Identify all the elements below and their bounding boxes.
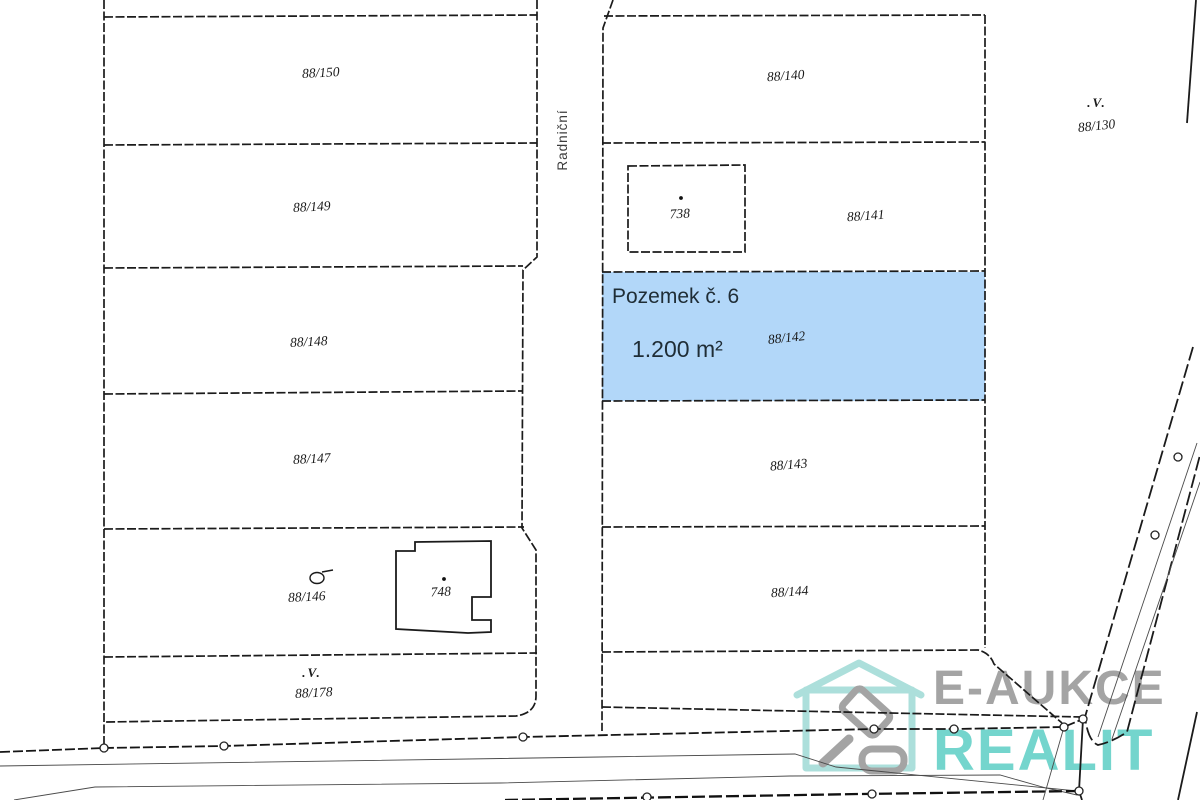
parcel-label-88-148: 88/148: [290, 333, 328, 350]
gavel-base: [862, 749, 904, 771]
highlight-parcel-area: 1.200 m²: [632, 336, 723, 362]
parcel-label-88-141: 88/141: [846, 207, 884, 225]
survey-point: [643, 793, 651, 800]
left-block-north-boundary: [104, 15, 537, 17]
cadastral-map: E-AUKCE REALIT: [0, 0, 1200, 800]
building-738-point: [679, 196, 683, 200]
parcel-label-88-146: 88/146: [288, 588, 326, 605]
parcel-label-88-140: 88/140: [766, 67, 805, 85]
survey-point: [868, 790, 876, 798]
right-boundary-top-segment: [1187, 0, 1196, 123]
parcel-label-88-147: 88/147: [293, 450, 332, 467]
boundary-140-141: [602, 142, 985, 143]
survey-point: [519, 733, 527, 741]
survey-point: [220, 742, 228, 750]
survey-point: [1060, 723, 1068, 731]
boundary-150-149: [104, 143, 537, 145]
boundary-141-142: [602, 271, 985, 272]
survey-point: [1075, 787, 1083, 795]
boundary-147-146: [104, 527, 524, 529]
garden-symbol-88-146: [310, 570, 333, 584]
survey-point: [870, 725, 878, 733]
cadastral-map-page: E-AUKCE REALIT: [0, 0, 1200, 800]
survey-point: [100, 744, 108, 752]
building-label-748: 748: [430, 583, 451, 599]
building-label-738: 738: [669, 205, 690, 221]
right-block-north-boundary: [604, 15, 985, 16]
gavel-handle: [823, 739, 849, 763]
logo-text-line1: E-AUKCE: [933, 662, 1166, 715]
street-label-radnicni: Radniční: [555, 109, 570, 170]
watermark-logo: E-AUKCE REALIT: [797, 662, 1166, 783]
meadow-symbol-88-130: .V.: [1087, 95, 1107, 110]
parcel-label-88-143: 88/143: [769, 455, 808, 473]
far-right-diagonal: [1178, 712, 1197, 800]
boundary-149-148: [104, 266, 523, 268]
parcel-label-88-149: 88/149: [293, 198, 331, 215]
boundary-146-178: [104, 653, 537, 657]
road-edge-thin-2: [14, 775, 1077, 800]
parcel-label-88-178: 88/178: [295, 684, 333, 701]
survey-point: [950, 725, 958, 733]
road-edge-far-bottom: [505, 791, 1080, 800]
building-748-point: [442, 577, 446, 581]
survey-point: [1174, 453, 1182, 461]
survey-point: [1079, 715, 1087, 723]
road-edge-main: [0, 719, 1083, 752]
meadow-symbol-88-178: .V.: [302, 665, 322, 680]
boundary-148-147: [104, 391, 522, 394]
parcel-label-88-144: 88/144: [770, 583, 809, 601]
boundary-143-144: [602, 526, 985, 527]
parcel-label-88-130: 88/130: [1077, 116, 1116, 135]
highlight-parcel-title: Pozemek č. 6: [612, 285, 739, 308]
survey-point: [1151, 531, 1159, 539]
parcel-label-88-150: 88/150: [302, 64, 340, 81]
